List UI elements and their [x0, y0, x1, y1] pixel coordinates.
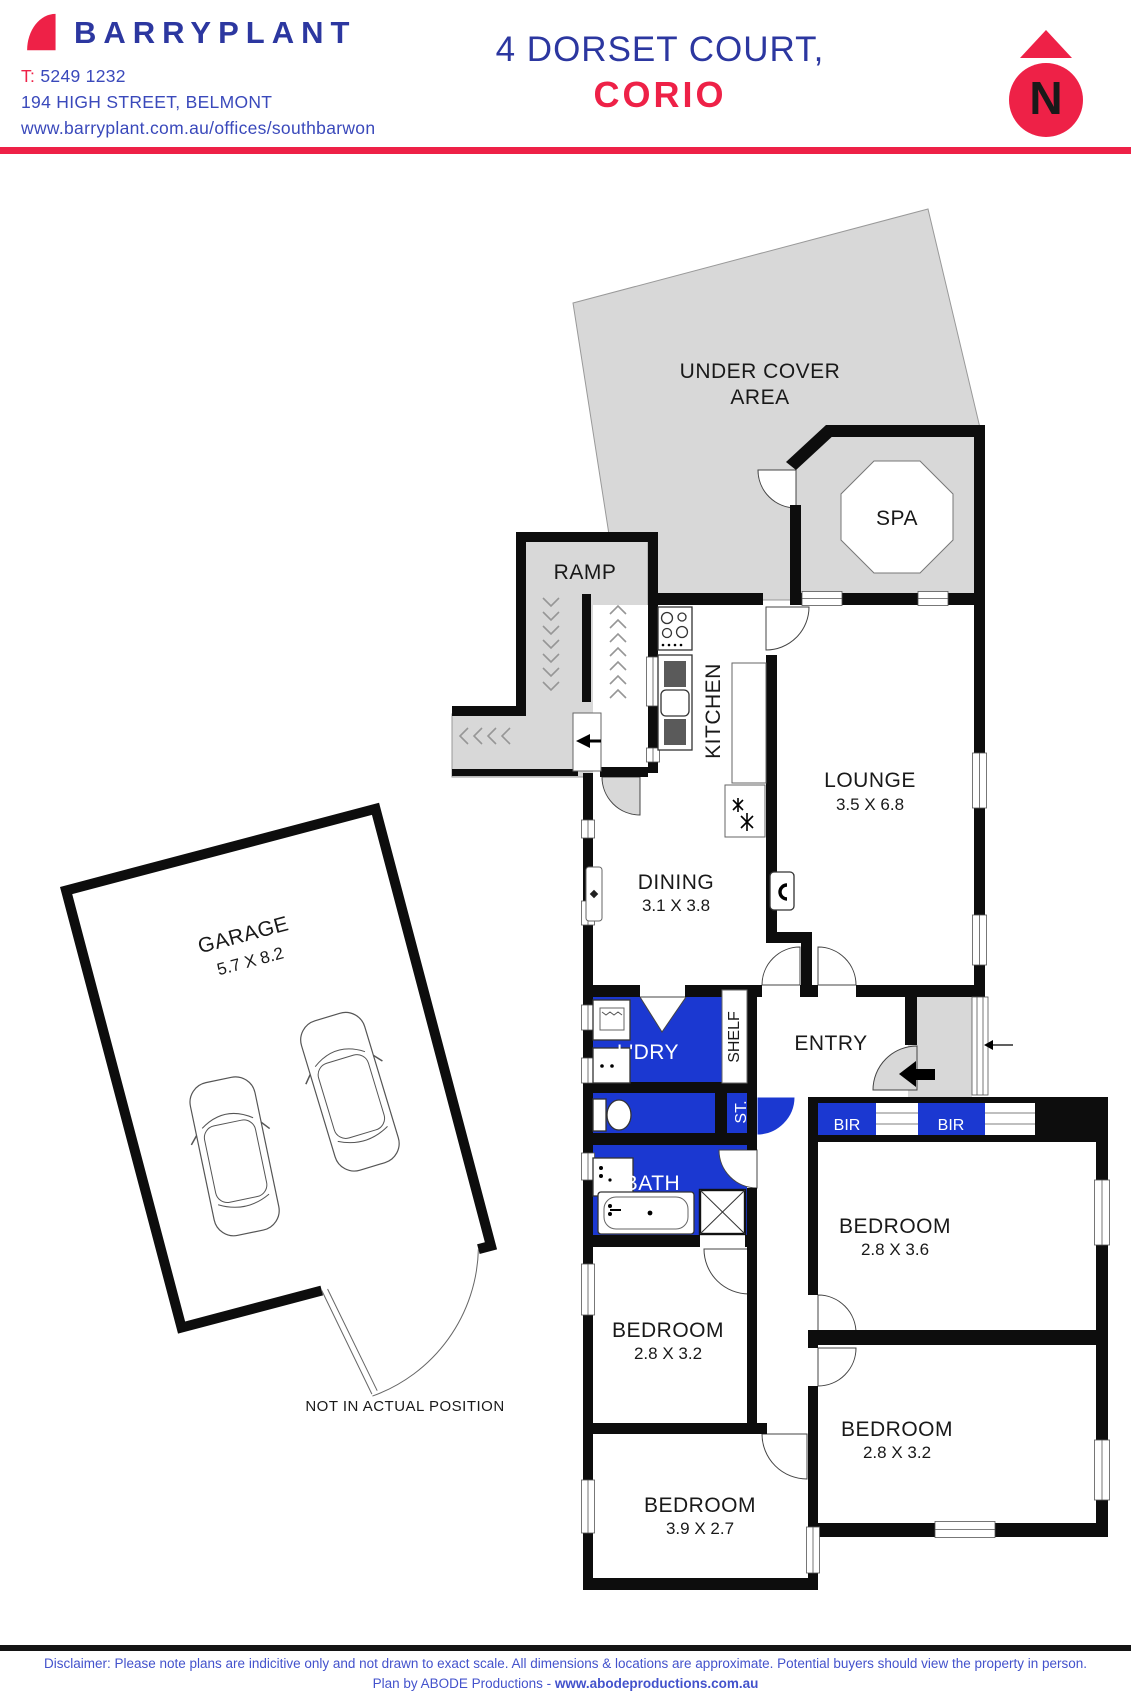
lounge-dims: 3.5 X 6.8 [836, 795, 904, 814]
kitchen-label: KITCHEN [702, 663, 725, 759]
plan-credit-prefix: Plan by ABODE Productions - [373, 1676, 555, 1691]
store-label: ST. [733, 1100, 750, 1123]
ramp-label: RAMP [554, 561, 617, 584]
plan-credit: Plan by ABODE Productions - www.abodepro… [0, 1676, 1131, 1691]
kitchen-bench [732, 663, 766, 783]
bedroom4-dims: 3.9 X 2.7 [666, 1519, 734, 1538]
bedroom2-dims: 2.8 X 3.2 [634, 1344, 702, 1363]
bedroom4-label: BEDROOM [644, 1494, 756, 1517]
toilet-icon [593, 1099, 631, 1131]
kitchen-sink-icon [658, 655, 692, 750]
lounge-label: LOUNGE [824, 769, 916, 792]
bir-left-label: BIR [834, 1117, 861, 1134]
dining-dims: 3.1 X 3.8 [642, 896, 710, 915]
bedroom1-dims: 2.8 X 3.6 [861, 1240, 929, 1259]
dining-label: DINING [638, 871, 715, 894]
footer-divider [0, 1645, 1131, 1651]
entry-double-door-left [762, 947, 800, 985]
bedroom1-label: BEDROOM [839, 1215, 951, 1238]
stove-icon [658, 607, 692, 650]
under-cover-label-2: AREA [730, 386, 789, 409]
gas-point-icon [770, 872, 794, 910]
abode-url[interactable]: www.abodeproductions.com.au [555, 1676, 759, 1691]
bedroom3-label: BEDROOM [841, 1418, 953, 1441]
disclaimer-text: Disclaimer: Please note plans are indici… [0, 1656, 1131, 1671]
shower-icon [700, 1190, 745, 1234]
garage-position-note: NOT IN ACTUAL POSITION [305, 1398, 504, 1415]
ramp-entry-door [573, 713, 601, 771]
laundry-trough-icon [593, 1000, 630, 1040]
bathtub-icon [598, 1192, 694, 1234]
laundry-label: L'DRY [617, 1041, 679, 1064]
under-cover-label-1: UNDER COVER [680, 360, 841, 383]
bedroom3-dims: 2.8 X 3.2 [863, 1443, 931, 1462]
spa-label: SPA [876, 507, 918, 530]
floor-plan: GARAGE 5.7 X 8.2 UNDER COVER AREA SPA RA… [0, 0, 1131, 1698]
shelf-label: SHELF [726, 1011, 743, 1063]
garage-block: GARAGE 5.7 X 8.2 [66, 809, 520, 1439]
bir-right-label: BIR [938, 1117, 965, 1134]
bath-label: BATH [624, 1172, 680, 1195]
entry-label: ENTRY [794, 1032, 867, 1055]
wall-heater-icon [586, 867, 602, 921]
bedroom2-label: BEDROOM [612, 1319, 724, 1342]
heater-unit-icon [725, 785, 765, 837]
